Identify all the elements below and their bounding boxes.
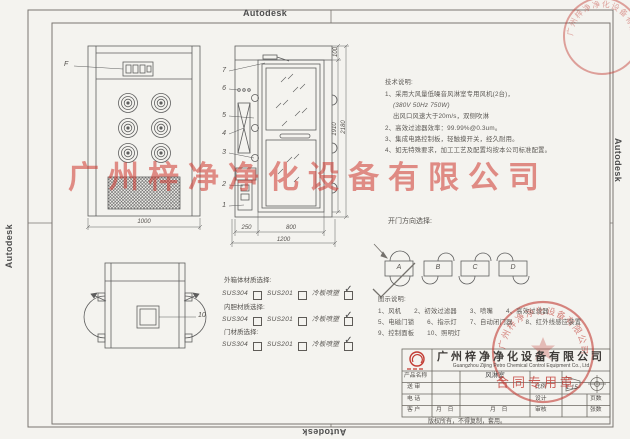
date-cell: 月 日 xyxy=(436,408,453,414)
material-option-label: SUS201 xyxy=(267,291,293,298)
row-label: 电 话 xyxy=(407,397,420,403)
callout-7: 7 xyxy=(216,67,226,74)
material-option-label: SUS304 xyxy=(222,342,248,349)
material-row: SUS304 SUS201 冷板喷塑 xyxy=(222,290,353,299)
checkbox-sus201[interactable] xyxy=(298,317,307,326)
material-row: SUS304 SUS201 冷板喷塑 xyxy=(222,341,353,350)
copyright-note: 版权所有，不得复制，套用。 xyxy=(428,419,506,425)
contract-seal-label: 合同专用章 xyxy=(496,372,576,391)
callout-10: 10 xyxy=(198,312,206,319)
company-logo xyxy=(407,352,424,369)
material-option-label: SUS304 xyxy=(222,317,248,324)
legend-row: 9、控制面板 10、照明灯 xyxy=(378,331,461,337)
note-line: 3、集成电路控制板，轻触摸开关，经久耐用。 xyxy=(385,137,519,143)
drawing-sheet: 广州梓净净化设备有限公司 广州梓净净化设备有限公司 Autodesk Autod… xyxy=(0,0,630,439)
material-group-label: 门材质选择: xyxy=(224,330,258,337)
material-option-label: SUS201 xyxy=(267,342,293,349)
swing-arrows xyxy=(91,293,199,301)
brand-top: Autodesk xyxy=(243,9,287,18)
legend-row: 1、风机 2、初效过滤器 3、喷嘴 4、高效过滤器 xyxy=(378,309,549,315)
callout-6: 6 xyxy=(216,85,226,92)
door-handle xyxy=(280,134,310,138)
corner-seal: 广州梓净净化设备有限公司 xyxy=(0,0,630,74)
corner-seal-arc-text: 广州梓净净化设备有限公司 xyxy=(0,0,630,36)
door-options-title: 开门方向选择: xyxy=(388,218,432,225)
door-option-a: A xyxy=(385,264,413,271)
product-label: 产品名称 xyxy=(404,374,427,380)
door-option-d: D xyxy=(499,264,527,271)
dim-800: 800 xyxy=(258,225,324,231)
callout-1: 1 xyxy=(216,202,226,209)
dim-1910: 1910 xyxy=(332,114,338,144)
checkbox-coldplate-checked[interactable] xyxy=(344,342,353,351)
checkbox-sus304[interactable] xyxy=(253,291,262,300)
design-label: 设计 xyxy=(535,397,547,403)
company-name-en: Guangzhou Zijing Petro Chemical Control … xyxy=(434,364,608,369)
material-option-label: 冷板喷塑 xyxy=(312,317,339,324)
note-line: 1、采用大风量低噪音风淋室专用风机(2台)， xyxy=(385,92,514,98)
material-group-label: 内胆材质选择: xyxy=(224,305,265,312)
dim-1200: 1200 xyxy=(232,237,335,243)
material-option-label: 冷板喷塑 xyxy=(312,342,339,349)
company-name-cn: 广州梓净净化设备有限公司 xyxy=(434,352,608,363)
legend-title: 图示说明: xyxy=(378,297,406,303)
audit-label: 审核 xyxy=(535,408,547,414)
pages-label: 页数 xyxy=(590,397,602,403)
svg-text:广州梓净净化设备有限公司: 广州梓净净化设备有限公司 xyxy=(0,0,630,36)
date-cell: 月 日 xyxy=(490,408,507,414)
row-label: 送 审 xyxy=(407,385,420,391)
legend-row: 5、电磁门锁 6、指示灯 7、自动闭门器 8、红外线感应装置 xyxy=(378,320,581,326)
dim-2180: 2180 xyxy=(341,112,347,142)
brand-right: Autodesk xyxy=(613,138,622,182)
checkbox-sus304[interactable] xyxy=(253,317,262,326)
notes-title: 技术说明: xyxy=(385,80,413,86)
material-row: SUS304 SUS201 冷板喷塑 xyxy=(222,316,353,325)
section-view xyxy=(229,44,349,247)
brand-bottom: Autodesk xyxy=(302,427,346,436)
callout-front-panel: F xyxy=(64,61,68,68)
checkbox-coldplate-checked[interactable] xyxy=(344,317,353,326)
door-option-c: C xyxy=(461,264,489,271)
sheets-label: 张数 xyxy=(590,408,602,414)
material-option-label: SUS304 xyxy=(222,291,248,298)
company-watermark: 广州梓净净化设备有限公司 xyxy=(68,152,548,197)
callout-5: 5 xyxy=(216,112,226,119)
checkbox-coldplate-checked[interactable] xyxy=(344,291,353,300)
material-group-label: 外箱体材质选择: xyxy=(224,278,271,285)
material-option-label: SUS201 xyxy=(267,317,293,324)
front-view xyxy=(74,46,202,230)
dim-1000: 1000 xyxy=(88,219,200,225)
checkbox-sus201[interactable] xyxy=(298,342,307,351)
door-glass-upper xyxy=(266,68,316,130)
note-line: 2、高效过滤器效率：99.99%@0.3um。 xyxy=(385,126,501,132)
dim-250: 250 xyxy=(235,225,258,231)
brand-left: Autodesk xyxy=(5,224,14,268)
checkbox-sus201[interactable] xyxy=(298,291,307,300)
dim-100: 100 xyxy=(333,38,339,66)
top-view xyxy=(84,263,206,348)
material-option-label: 冷板喷塑 xyxy=(312,291,339,298)
checkbox-sus304[interactable] xyxy=(253,342,262,351)
door-option-b: B xyxy=(424,264,452,271)
note-line: (380V 50Hz 750W) xyxy=(393,103,450,109)
callout-4: 4 xyxy=(216,130,226,137)
note-line: 出风口风速大于20m/s，双侧吹淋 xyxy=(393,114,489,120)
row-label: 客 户 xyxy=(407,408,420,414)
